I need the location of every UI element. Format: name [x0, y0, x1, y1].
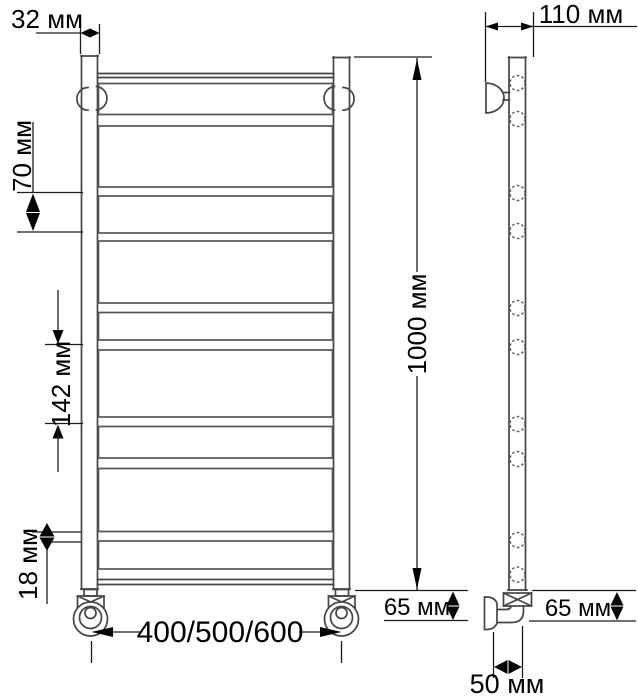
rung — [99, 126, 333, 187]
arrowhead — [90, 29, 100, 38]
dim-height: 1000 мм — [354, 57, 432, 590]
rung — [99, 469, 333, 532]
drawing-canvas: 32 мм 70 мм 142 мм 18 — [0, 0, 638, 700]
rung — [99, 241, 333, 303]
rung-hole — [510, 533, 525, 548]
rung — [99, 313, 333, 341]
top-crossbar — [98, 74, 334, 78]
wall-bracket — [486, 83, 510, 113]
valve-neck — [336, 590, 349, 597]
dim-rung-gap-142-label: 142 мм — [46, 341, 76, 427]
arrowhead — [26, 213, 40, 231]
rung-hole — [510, 224, 525, 239]
arrowhead — [521, 23, 534, 31]
rung-hole — [510, 567, 525, 582]
rung-hole — [510, 76, 525, 91]
left-collector-tube — [81, 56, 98, 590]
side-holes — [510, 76, 525, 583]
dim-bottom-offset-side-label: 65 мм — [545, 595, 611, 622]
wall-flange — [485, 597, 498, 630]
dim-rung-gap-70: 70 мм — [7, 120, 83, 232]
arrowhead — [413, 59, 422, 81]
side-view — [485, 57, 532, 630]
side-collector-tube — [509, 57, 527, 590]
rung — [99, 350, 333, 417]
rung-hole — [510, 340, 525, 355]
front-view — [74, 56, 359, 637]
front-rungs — [99, 84, 333, 570]
rung — [99, 427, 333, 459]
dim-width-options: 400/500/600 — [92, 616, 342, 663]
dim-rung-gap-18-label: 18 мм — [13, 528, 43, 600]
arrowhead — [486, 23, 499, 31]
dim-wall-offset-label: 50 мм — [470, 669, 545, 699]
valve-neck — [84, 590, 97, 597]
bracket-cup — [486, 83, 504, 113]
right-collector-tube — [333, 57, 350, 590]
dim-bottom-offset-front: 65 мм — [355, 591, 468, 622]
bottom-crossbar — [98, 580, 334, 585]
rung — [99, 541, 333, 569]
arrowhead — [611, 592, 624, 606]
right-bottom-valve — [325, 589, 359, 636]
dim-tube-diameter: 32 мм — [11, 4, 99, 54]
dim-rung-gap-142: 142 мм — [45, 290, 83, 472]
dim-tube-diameter-label: 32 мм — [11, 4, 83, 34]
dim-wall-offset: 50 мм — [470, 626, 545, 699]
dim-width-options-label: 400/500/600 — [137, 616, 304, 649]
towel-rail-dimension-drawing: 32 мм 70 мм 142 мм 18 — [0, 0, 638, 700]
arrowhead — [26, 194, 40, 213]
dim-bottom-offset-side: 65 мм — [529, 591, 636, 623]
rung — [99, 196, 333, 233]
dim-height-label: 1000 мм — [402, 274, 432, 375]
rung-hole — [510, 417, 525, 432]
left-bottom-valve — [74, 589, 108, 636]
dim-rung-gap-18: 18 мм — [13, 523, 81, 604]
rung-hole — [510, 301, 525, 316]
arc — [77, 88, 88, 111]
dim-depth-label: 110 мм — [539, 0, 623, 29]
arrowhead — [611, 607, 624, 621]
side-bottom-connection — [485, 590, 532, 630]
arrowhead — [413, 568, 422, 590]
rung-hole — [510, 112, 525, 127]
rung-hole — [510, 452, 525, 467]
rung-hole — [510, 186, 525, 201]
rung — [99, 84, 333, 115]
arc — [343, 88, 354, 111]
dim-rung-gap-70-label: 70 мм — [7, 120, 37, 192]
dim-bottom-offset-front-label: 65 мм — [384, 594, 450, 621]
